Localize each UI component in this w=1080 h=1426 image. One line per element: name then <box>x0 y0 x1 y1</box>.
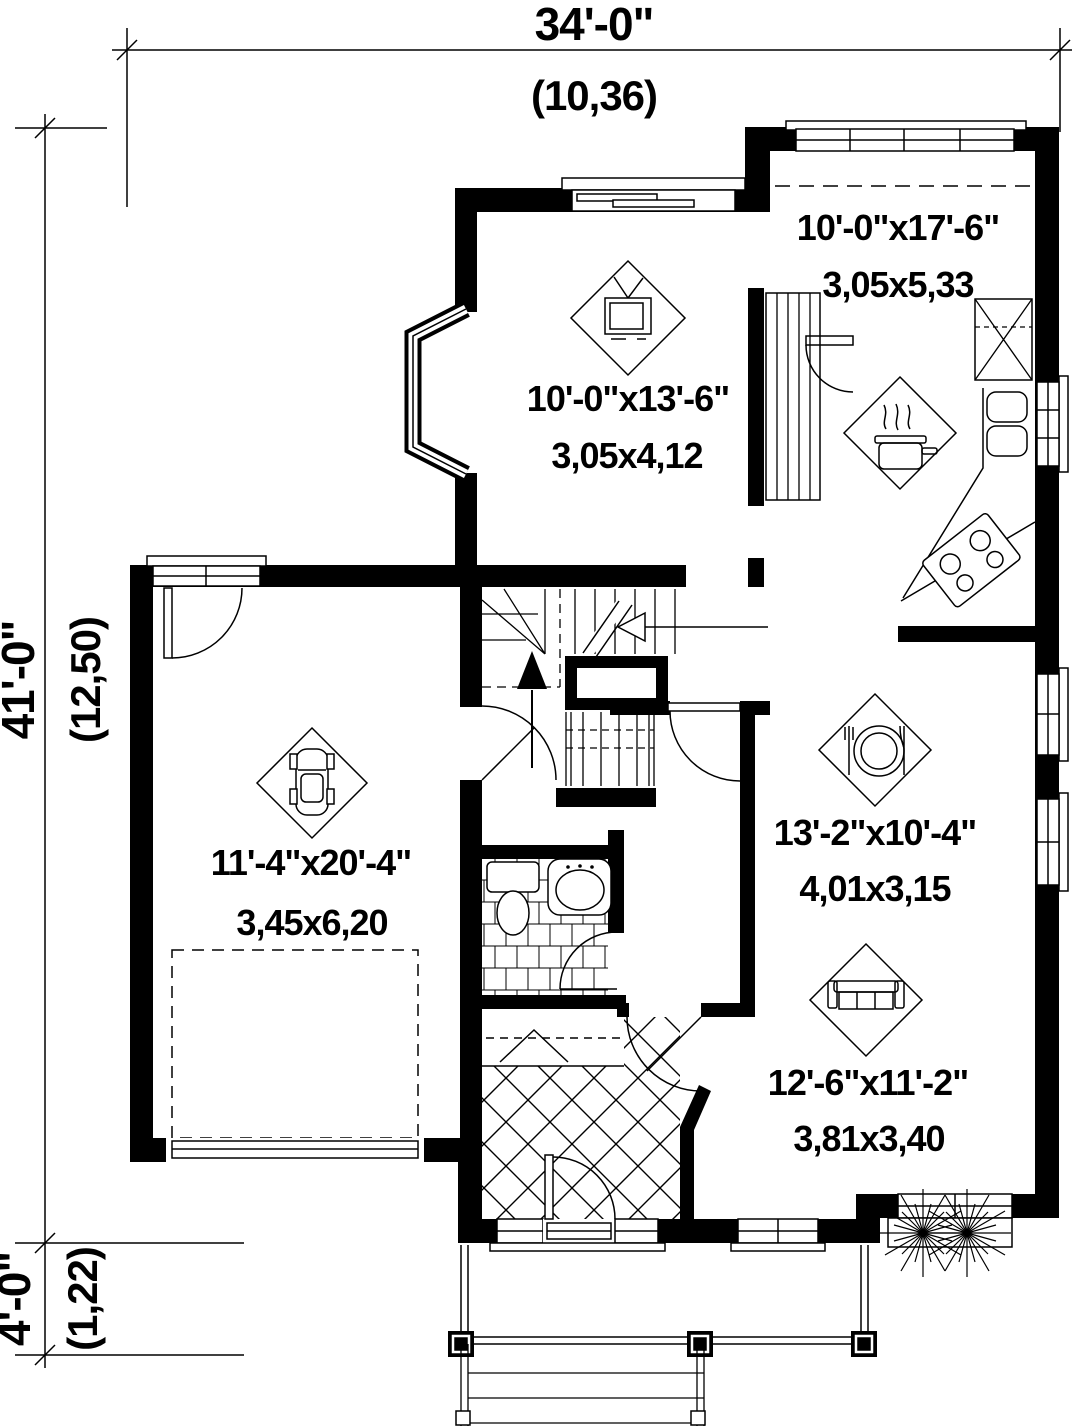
garage-label-metric: 3,45x6,20 <box>236 902 387 943</box>
pantry-shelves <box>766 293 820 500</box>
stove <box>921 512 1021 608</box>
dimension-top: 34'-0" (10,36) <box>112 0 1072 207</box>
dining-label-imperial: 13'-2"x10'-4" <box>774 812 976 853</box>
family-label-metric: 3,81x3,40 <box>793 1118 944 1159</box>
garage-side-door <box>164 588 242 658</box>
family-front-window <box>879 1189 1012 1277</box>
garage-window <box>147 556 266 586</box>
stair-cut-arrow <box>618 613 645 641</box>
dim-width-imperial: 34'-0" <box>535 0 654 50</box>
kitchen-label-imperial: 10'-0"x17'-6" <box>797 207 999 248</box>
stair-up-arrow <box>517 651 547 689</box>
garage-entry-door <box>482 706 556 780</box>
dim-depth-imperial: 41'-0" <box>0 621 44 740</box>
kitchen-label-metric: 3,05x5,33 <box>822 264 973 305</box>
floor-plan-drawing: 34'-0" (10,36) 41'-0" (12,50) 4'-0" (1,2… <box>0 0 1080 1426</box>
porch <box>448 1245 877 1426</box>
porch-steps <box>456 1344 705 1426</box>
sofa-icon <box>810 944 922 1056</box>
place-setting-icon <box>819 694 931 806</box>
dim-width-metric: (10,36) <box>531 72 657 119</box>
dim-porch-imperial: 4'-0" <box>0 1252 40 1346</box>
dining-label-metric: 4,01x3,15 <box>799 868 951 909</box>
garage-storage-dashed <box>172 950 418 1138</box>
basement-stair <box>566 712 654 786</box>
dim-porch-metric: (1,22) <box>59 1247 106 1351</box>
kitchen-sink <box>987 392 1027 456</box>
closet-bifold-door <box>482 1030 624 1066</box>
bathroom-sink <box>548 859 611 915</box>
front-entry-glazing <box>490 1219 825 1251</box>
floor-plan-sheet: 34'-0" (10,36) 41'-0" (12,50) 4'-0" (1,2… <box>0 0 1080 1426</box>
dim-depth-metric: (12,50) <box>62 617 109 743</box>
dimension-left: 41'-0" (12,50) <box>0 114 244 1368</box>
pantry-door <box>806 336 853 392</box>
family-label-imperial: 12'-6"x11'-2" <box>768 1062 968 1103</box>
refrigerator <box>975 299 1032 380</box>
living-top-window <box>562 178 745 211</box>
dining-side-window-1 <box>1037 668 1068 761</box>
dining-door <box>668 703 740 781</box>
car-icon <box>257 728 367 838</box>
garage-door <box>166 1138 424 1162</box>
porch-railing <box>461 1245 868 1344</box>
tv-icon <box>571 261 685 375</box>
living-label-imperial: 10'-0"x13'-6" <box>527 378 729 419</box>
living-label-metric: 3,05x4,12 <box>551 435 702 476</box>
garage-label-imperial: 11'-4"x20'-4" <box>211 842 411 883</box>
foyer-tile-floor <box>482 1017 680 1219</box>
garage-features <box>166 950 424 1162</box>
kitchen-side-window <box>1037 376 1068 472</box>
dimension-porch: 4'-0" (1,22) <box>0 1247 106 1351</box>
cooking-pot-icon <box>844 377 956 489</box>
kitchen-top-window <box>786 121 1026 151</box>
dining-side-window-2 <box>1037 793 1068 891</box>
